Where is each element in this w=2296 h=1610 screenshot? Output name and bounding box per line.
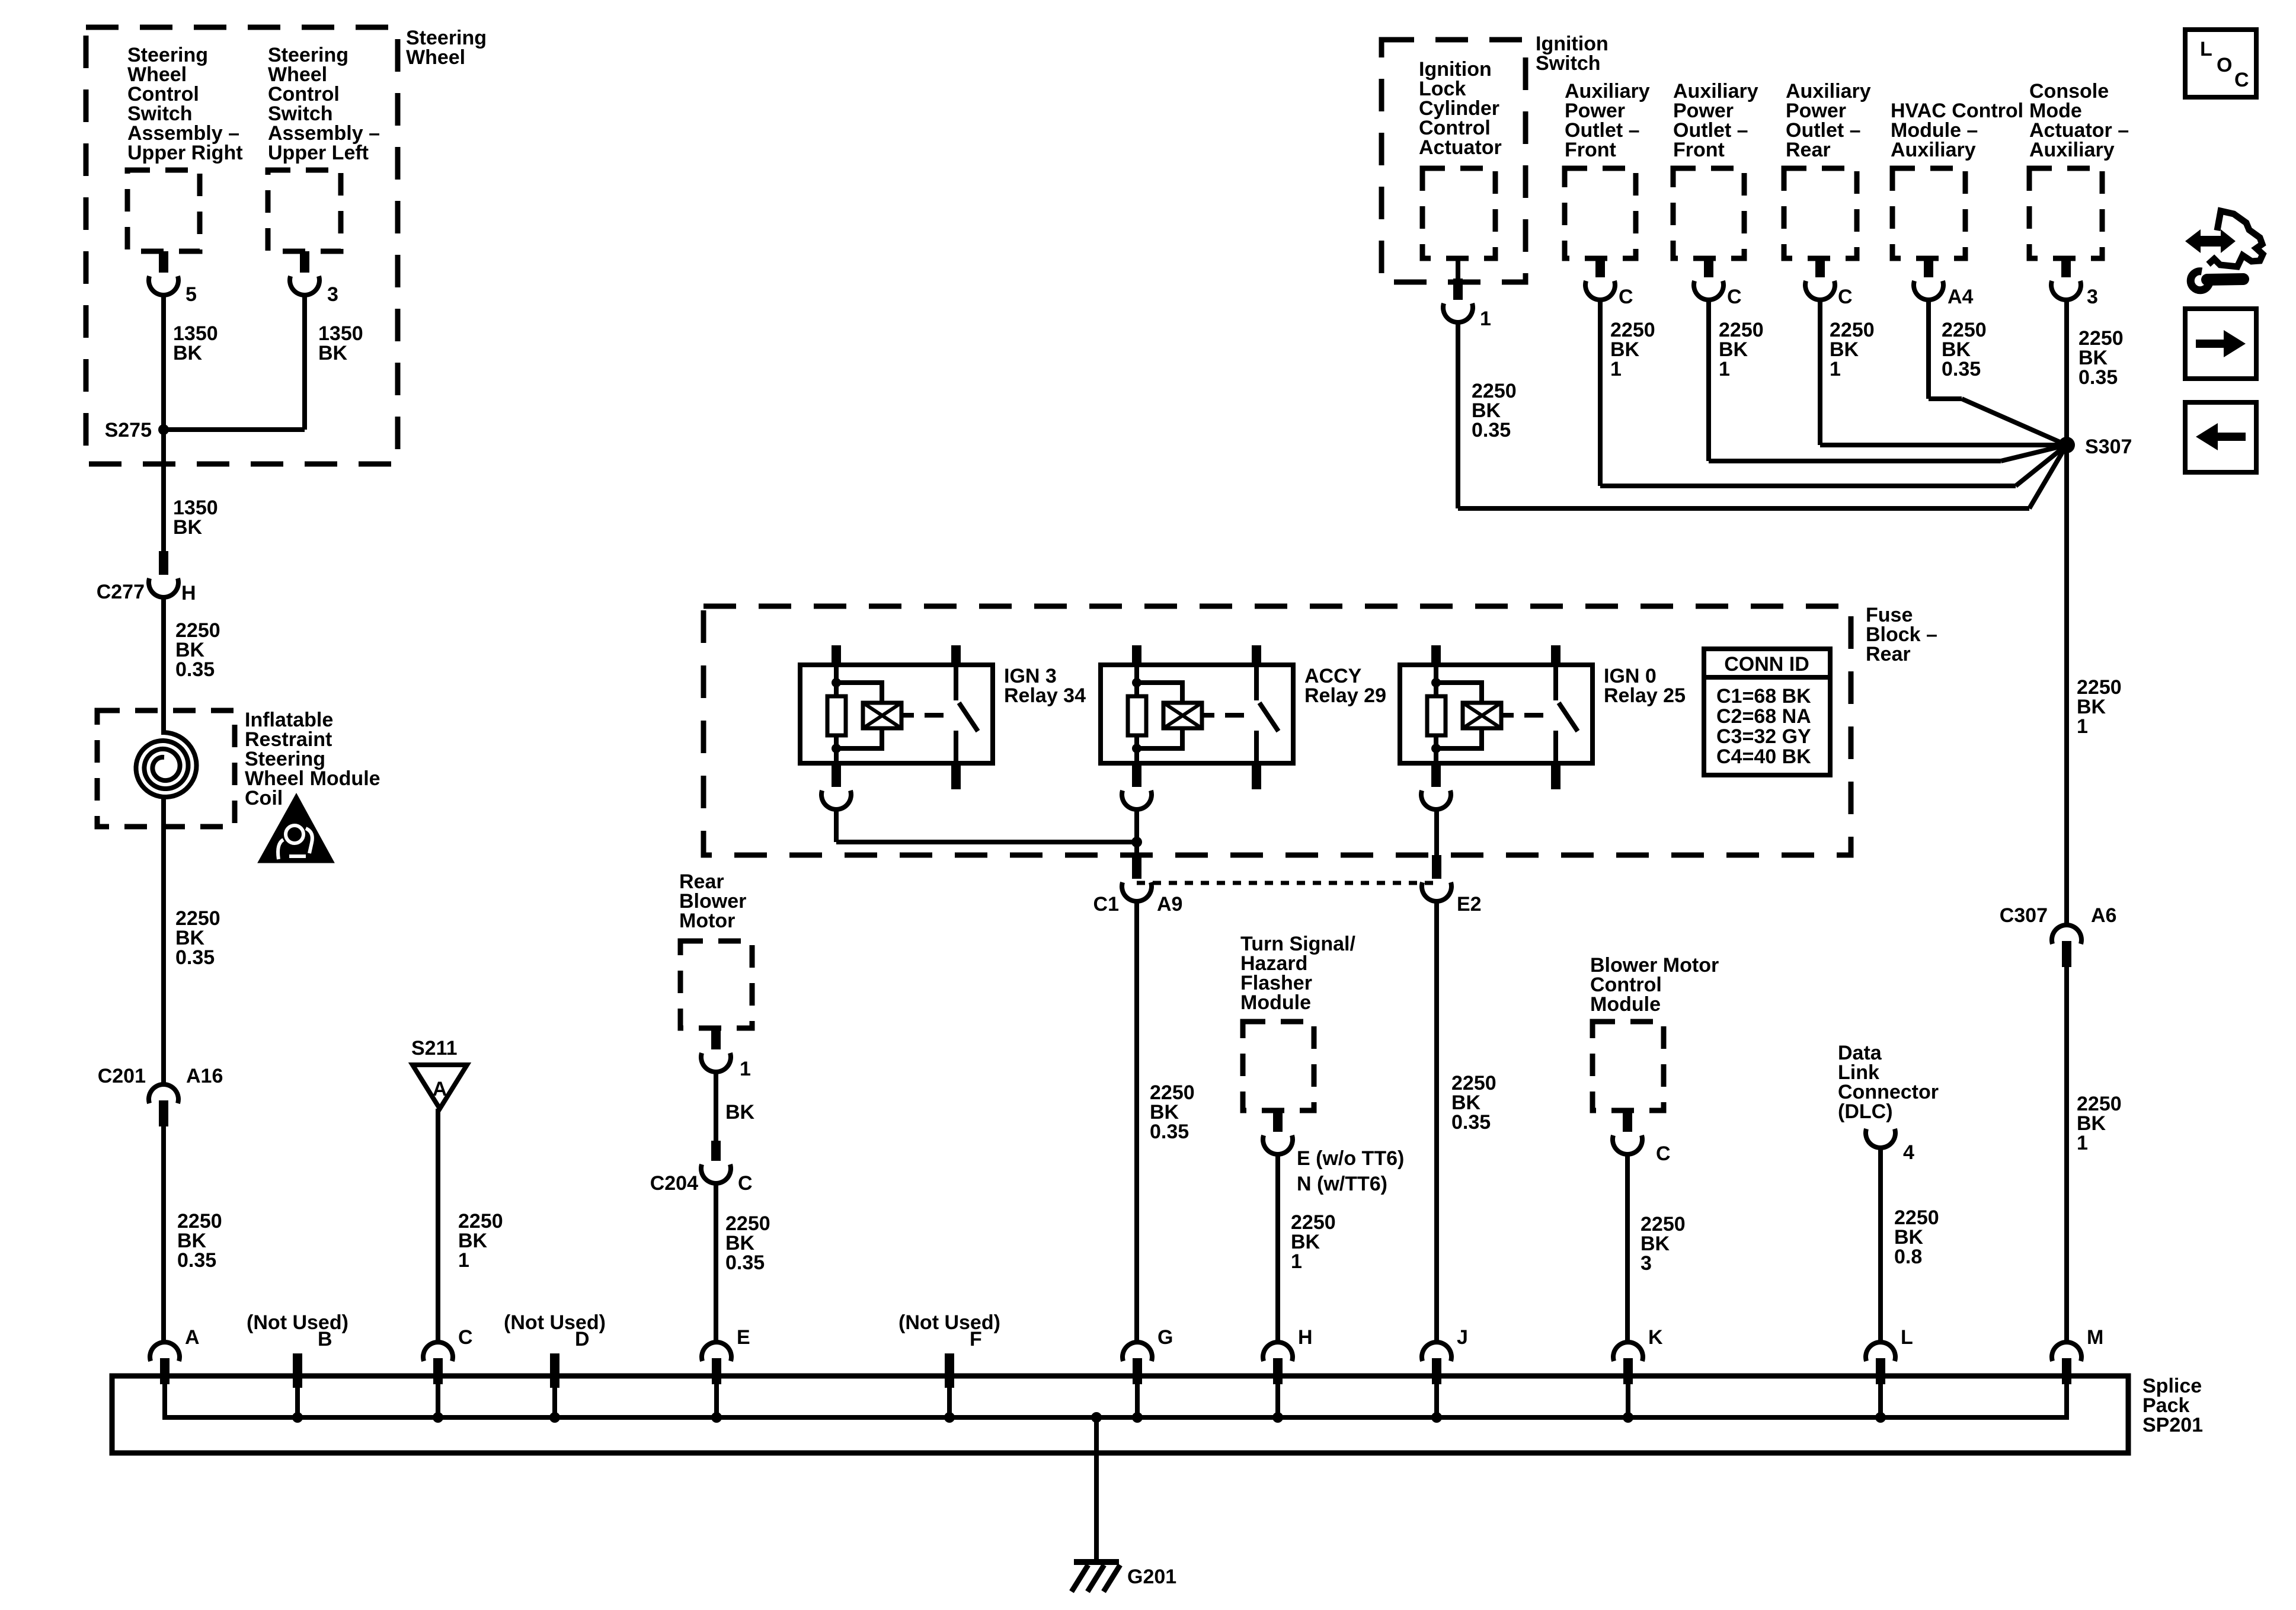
svg-text:S307: S307: [2085, 436, 2132, 458]
svg-text:Upper Left: Upper Left: [268, 142, 369, 164]
svg-text:C204: C204: [650, 1172, 698, 1195]
svg-text:0.35: 0.35: [725, 1251, 765, 1274]
svg-text:5: 5: [186, 283, 197, 306]
svg-text:CONN ID: CONN ID: [1724, 653, 1809, 676]
svg-text:BK: BK: [725, 1101, 755, 1124]
svg-text:C4=40 BK: C4=40 BK: [1716, 745, 1811, 768]
svg-text:N (w/TT6): N (w/TT6): [1297, 1173, 1387, 1195]
svg-text:H: H: [1298, 1326, 1313, 1349]
svg-text:C277: C277: [97, 581, 145, 603]
svg-text:Relay 34: Relay 34: [1004, 684, 1086, 707]
svg-text:Front: Front: [1673, 139, 1725, 161]
svg-text:C: C: [458, 1326, 473, 1349]
svg-text:C307: C307: [2000, 904, 2048, 927]
svg-text:Rear: Rear: [1786, 139, 1831, 161]
svg-text:0.8: 0.8: [1894, 1246, 1922, 1268]
svg-text:C201: C201: [98, 1065, 146, 1087]
svg-text:0.35: 0.35: [1451, 1111, 1491, 1134]
svg-text:1: 1: [1291, 1250, 1302, 1273]
svg-text:Relay 29: Relay 29: [1304, 684, 1386, 707]
svg-text:0.35: 0.35: [175, 946, 215, 969]
svg-text:1: 1: [2077, 715, 2088, 738]
svg-text:Upper Right: Upper Right: [127, 142, 243, 164]
svg-text:B: B: [318, 1328, 332, 1350]
svg-text:A: A: [433, 1078, 447, 1100]
svg-text:3: 3: [327, 283, 338, 306]
svg-text:3: 3: [2087, 286, 2098, 308]
svg-text:1: 1: [1830, 358, 1841, 380]
svg-text:0.35: 0.35: [1942, 358, 1981, 380]
svg-text:4: 4: [1903, 1141, 1914, 1164]
svg-text:Motor: Motor: [679, 910, 735, 932]
svg-text:Front: Front: [1565, 139, 1616, 161]
svg-text:(DLC): (DLC): [1838, 1100, 1893, 1123]
svg-text:C: C: [1838, 286, 1853, 308]
svg-text:C: C: [2234, 69, 2249, 91]
svg-text:G: G: [1157, 1326, 1173, 1349]
svg-text:C: C: [1727, 286, 1742, 308]
svg-text:(Not Used): (Not Used): [504, 1311, 606, 1334]
svg-text:BK: BK: [173, 342, 203, 364]
svg-text:Rear: Rear: [1866, 643, 1911, 665]
svg-text:SP201: SP201: [2142, 1414, 2203, 1436]
svg-text:C3=32 GY: C3=32 GY: [1716, 725, 1811, 748]
svg-text:D: D: [575, 1328, 590, 1350]
svg-text:M: M: [2087, 1326, 2103, 1349]
svg-text:3: 3: [1641, 1252, 1652, 1275]
svg-text:C: C: [1619, 286, 1633, 308]
svg-text:L: L: [2200, 38, 2212, 60]
svg-text:0.35: 0.35: [175, 658, 215, 681]
svg-text:S211: S211: [411, 1037, 458, 1060]
svg-text:C1=68 BK: C1=68 BK: [1716, 685, 1811, 708]
svg-text:S275: S275: [105, 419, 152, 441]
svg-text:A9: A9: [1157, 893, 1182, 916]
svg-text:(Not Used): (Not Used): [898, 1311, 1000, 1334]
svg-text:Relay 25: Relay 25: [1604, 684, 1686, 707]
svg-text:H: H: [181, 582, 196, 604]
svg-text:K: K: [1648, 1326, 1663, 1349]
svg-text:Wheel: Wheel: [406, 46, 465, 69]
svg-text:Coil: Coil: [245, 787, 283, 809]
svg-text:Module: Module: [1240, 991, 1311, 1014]
svg-text:1: 1: [740, 1058, 751, 1080]
svg-text:1: 1: [2077, 1132, 2088, 1154]
svg-text:1: 1: [1719, 358, 1730, 380]
svg-text:A6: A6: [2091, 904, 2116, 927]
svg-text:1: 1: [1610, 358, 1622, 380]
svg-text:Module: Module: [1590, 993, 1661, 1016]
svg-text:A4: A4: [1948, 286, 1974, 308]
svg-text:C: C: [738, 1172, 753, 1195]
svg-text:A16: A16: [186, 1065, 223, 1087]
svg-text:1: 1: [458, 1249, 469, 1272]
svg-text:J: J: [1457, 1326, 1468, 1349]
svg-text:0.35: 0.35: [1150, 1121, 1189, 1143]
svg-text:G201: G201: [1127, 1566, 1176, 1588]
svg-text:F: F: [970, 1328, 982, 1350]
svg-text:Actuator: Actuator: [1419, 136, 1502, 159]
svg-text:E (w/o TT6): E (w/o TT6): [1297, 1147, 1404, 1170]
svg-text:Auxiliary: Auxiliary: [2029, 139, 2115, 161]
svg-text:O: O: [2217, 54, 2232, 76]
svg-text:(Not Used): (Not Used): [247, 1311, 348, 1334]
svg-text:C2=68 NA: C2=68 NA: [1716, 705, 1811, 728]
svg-text:L: L: [1901, 1326, 1913, 1349]
svg-text:1: 1: [1480, 308, 1491, 330]
svg-text:BK: BK: [173, 516, 203, 539]
svg-text:0.35: 0.35: [2078, 366, 2118, 389]
svg-text:0.35: 0.35: [1472, 419, 1511, 441]
svg-text:E2: E2: [1457, 893, 1482, 916]
svg-text:C: C: [1656, 1142, 1671, 1165]
svg-text:Switch: Switch: [1536, 52, 1601, 75]
svg-text:BK: BK: [318, 342, 348, 364]
svg-text:E: E: [737, 1326, 750, 1349]
svg-text:C1: C1: [1093, 893, 1119, 916]
svg-text:Auxiliary: Auxiliary: [1891, 139, 1976, 161]
svg-text:0.35: 0.35: [177, 1249, 216, 1272]
svg-text:A: A: [185, 1326, 200, 1349]
